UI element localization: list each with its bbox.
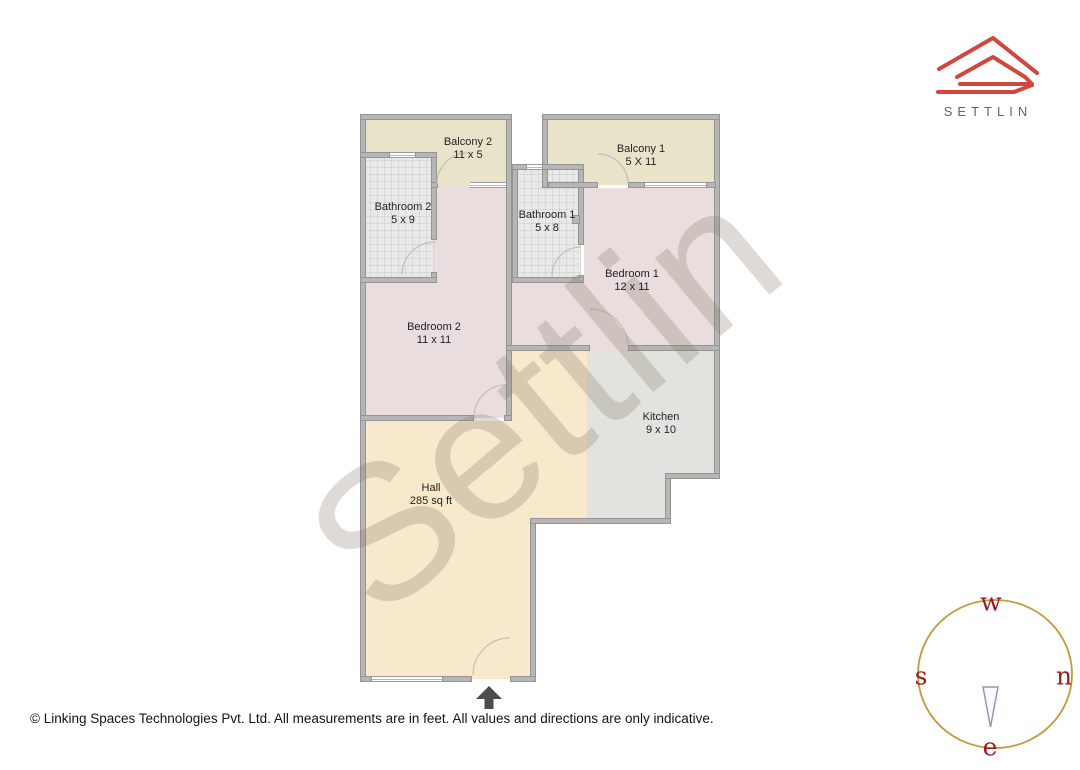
- brand-roof-icon: [933, 33, 1043, 95]
- door-arc: [474, 385, 506, 417]
- room-dims: 5 x 9: [375, 214, 432, 227]
- room-label-bathroom-2: Bathroom 2 5 x 9: [375, 201, 432, 227]
- compass-letter-n: n: [1056, 662, 1072, 691]
- room-dims: 9 x 10: [643, 424, 680, 437]
- room-label-hall: Hall 285 sq ft: [410, 482, 452, 508]
- door-arc: [552, 247, 581, 276]
- room-dims: 12 x 11: [605, 281, 659, 294]
- room-dims: 5 x 8: [519, 222, 576, 235]
- compass-letter-s: s: [915, 662, 928, 691]
- compass-letter-e: e: [983, 733, 998, 762]
- room-dims: 11 x 5: [444, 149, 492, 162]
- room-name: Bedroom 2: [407, 321, 461, 334]
- room-label-bedroom-2: Bedroom 2 11 x 11: [407, 321, 461, 347]
- door-arc: [590, 309, 628, 347]
- room-name: Bedroom 1: [605, 268, 659, 281]
- room-dims: 285 sq ft: [410, 495, 452, 508]
- room-name: Kitchen: [643, 411, 680, 424]
- room-label-kitchen: Kitchen 9 x 10: [643, 411, 680, 437]
- door-arc: [473, 638, 510, 675]
- room-label-balcony-1: Balcony 1 5 X 11: [617, 143, 665, 169]
- door-arc: [402, 242, 435, 275]
- copyright-text: © Linking Spaces Technologies Pvt. Ltd. …: [30, 711, 714, 726]
- room-name: Bathroom 2: [375, 201, 432, 214]
- room-label-balcony-2: Balcony 2 11 x 5: [444, 136, 492, 162]
- entrance-arrow-icon: [476, 686, 504, 710]
- room-dims: 11 x 11: [407, 334, 461, 347]
- room-name: Bathroom 1: [519, 209, 576, 222]
- room-label-bathroom-1: Bathroom 1 5 x 8: [519, 209, 576, 235]
- compass: w s n e: [905, 585, 1080, 765]
- room-name: Balcony 2: [444, 136, 492, 149]
- brand-logo: SETTLIN: [928, 33, 1048, 119]
- room-name: Balcony 1: [617, 143, 665, 156]
- room-label-bedroom-1: Bedroom 1 12 x 11: [605, 268, 659, 294]
- compass-letter-w: w: [980, 588, 1001, 617]
- floorplan-page: { "logo": { "brand": "SETTLIN" }, "water…: [0, 0, 1080, 764]
- room-name: Hall: [410, 482, 452, 495]
- brand-name: SETTLIN: [928, 104, 1048, 119]
- room-dims: 5 X 11: [617, 156, 665, 169]
- compass-needle-icon: [983, 687, 998, 727]
